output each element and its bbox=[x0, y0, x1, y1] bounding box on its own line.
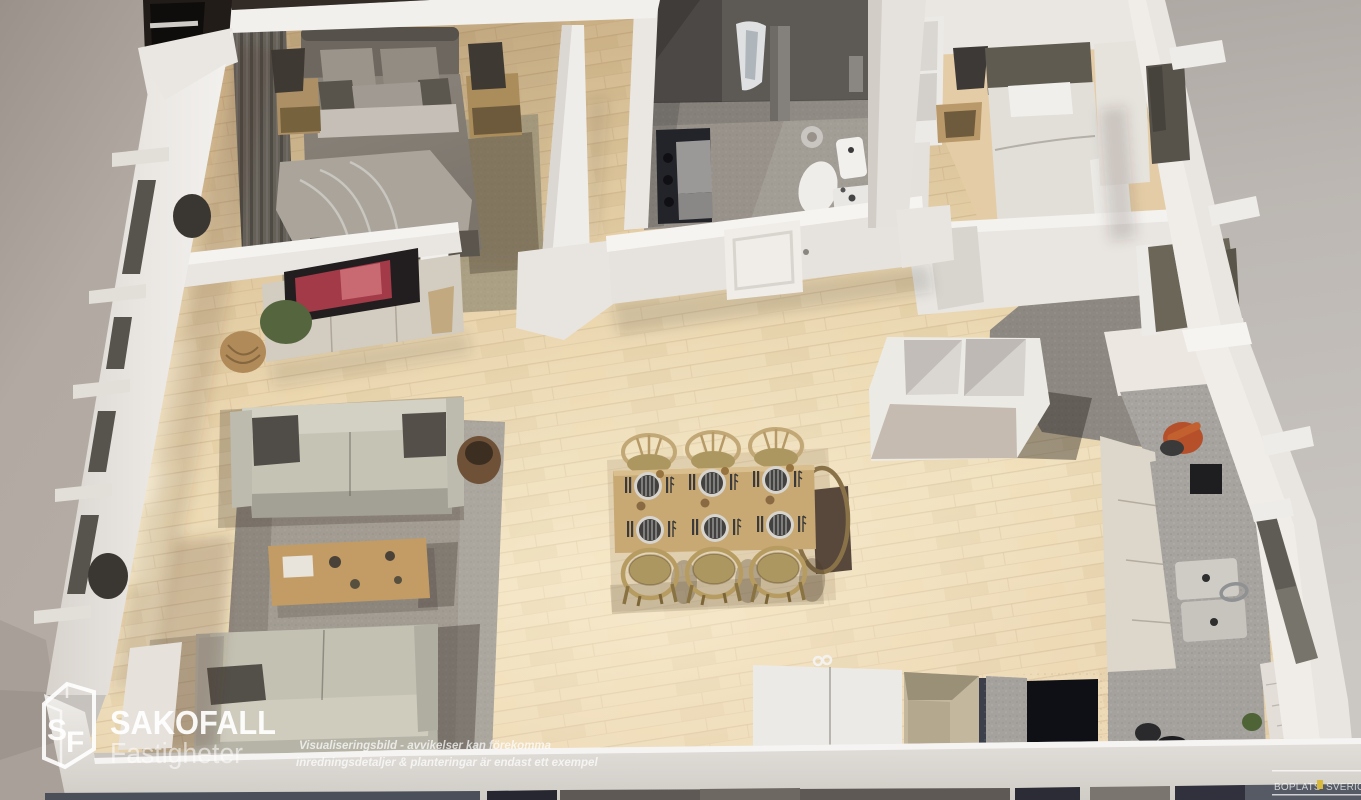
svg-text:inredningsdetaljer & planterin: inredningsdetaljer & planteringar är end… bbox=[296, 757, 598, 769]
svg-text:Visualiseringsbild - avvikelse: Visualiseringsbild - avvikelser kan före… bbox=[299, 740, 552, 752]
svg-text:SVERIGE: SVERIGE bbox=[1326, 782, 1361, 793]
svg-text:BOPLATS: BOPLATS bbox=[1274, 782, 1321, 793]
svg-text:S: S bbox=[47, 714, 67, 747]
svg-text:SAKOFALL: SAKOFALL bbox=[110, 704, 276, 741]
svg-text:F: F bbox=[66, 726, 84, 759]
svg-text:Fastigheter: Fastigheter bbox=[110, 738, 243, 770]
